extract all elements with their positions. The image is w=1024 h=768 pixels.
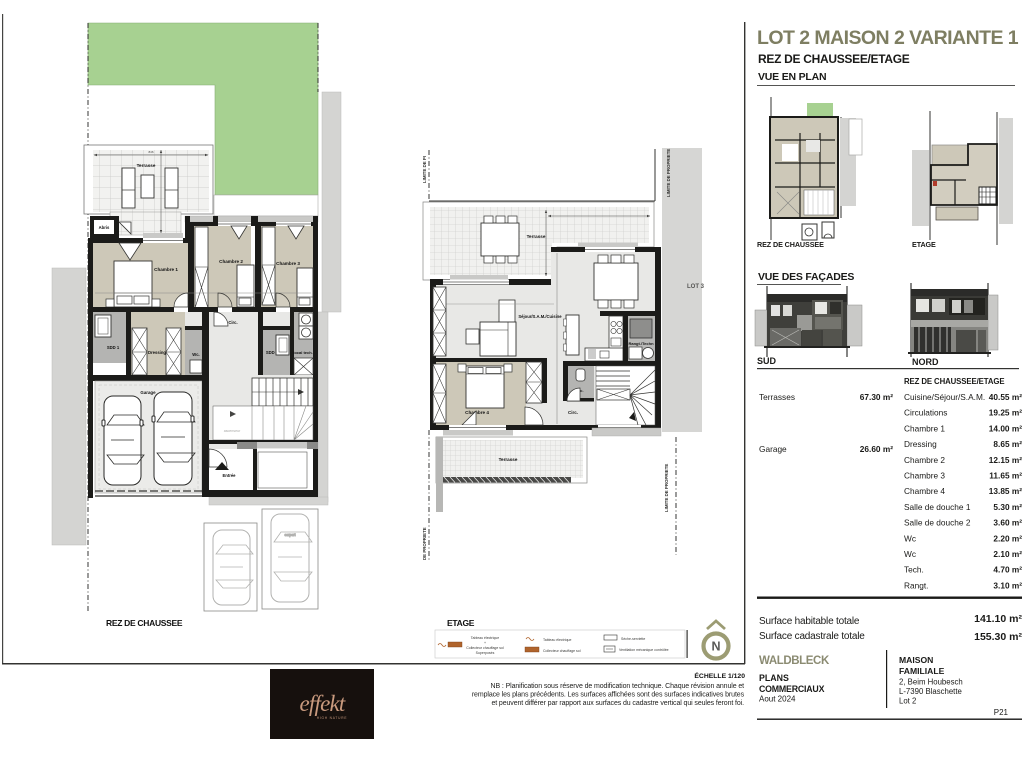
- svg-text:Chambre 3: Chambre 3: [904, 471, 945, 481]
- svg-text:Chambre 2: Chambre 2: [219, 259, 243, 264]
- svg-text:effekt: effekt: [300, 691, 346, 716]
- svg-text:et peuvent différer par rappor: et peuvent différer par rapport aux surf…: [491, 700, 744, 707]
- svg-text:Chambre 4: Chambre 4: [465, 410, 489, 415]
- svg-text:HIGH NATURE: HIGH NATURE: [317, 716, 348, 720]
- svg-text:Chambre 3: Chambre 3: [276, 261, 300, 266]
- svg-text:2.10 m²: 2.10 m²: [993, 549, 1022, 559]
- svg-text:Rangt./Techn: Rangt./Techn: [628, 341, 654, 346]
- svg-text:19.25 m²: 19.25 m²: [989, 408, 1022, 418]
- svg-text:846: 846: [148, 150, 153, 154]
- svg-text:Garage: Garage: [759, 444, 787, 454]
- svg-text:local tech.: local tech.: [293, 350, 313, 355]
- svg-text:ETAGE: ETAGE: [912, 240, 936, 249]
- svg-text:SDD 1: SDD 1: [107, 345, 120, 350]
- svg-text:Lot 2: Lot 2: [899, 697, 916, 706]
- svg-text:ÉCHELLE 1/120: ÉCHELLE 1/120: [694, 671, 745, 680]
- svg-text:Aout 2024: Aout 2024: [759, 695, 796, 704]
- svg-text:REZ DE CHAUSSEE/ETAGE: REZ DE CHAUSSEE/ETAGE: [904, 377, 1004, 386]
- svg-text:Terrasses: Terrasses: [759, 392, 795, 402]
- svg-text:Surface cadastrale totale: Surface cadastrale totale: [759, 631, 865, 642]
- svg-text:2, Beim Houbesch: 2, Beim Houbesch: [899, 678, 963, 687]
- svg-text:4.70 m²: 4.70 m²: [993, 565, 1022, 575]
- svg-text:Terrasse: Terrasse: [527, 234, 546, 239]
- svg-text:Terrasse: Terrasse: [137, 163, 156, 168]
- svg-text:carport: carport: [285, 533, 296, 537]
- svg-text:Chambre 1: Chambre 1: [904, 423, 945, 433]
- svg-text:N: N: [711, 640, 720, 654]
- svg-text:Chambre 2: Chambre 2: [904, 455, 945, 465]
- svg-text:REZ DE CHAUSSEE: REZ DE CHAUSSEE: [757, 240, 824, 249]
- svg-text:Wc: Wc: [904, 549, 916, 559]
- svg-text:NB : Planification sous réserv: NB : Planification sous réserve de modif…: [491, 683, 745, 690]
- svg-text:LOT 3: LOT 3: [687, 284, 705, 290]
- svg-text:L-7390 Blaschette: L-7390 Blaschette: [899, 687, 962, 696]
- svg-text:Tableau électrique: Tableau électrique: [471, 636, 499, 640]
- svg-text:Sèche-serviette: Sèche-serviette: [621, 637, 645, 641]
- svg-text:MAISON: MAISON: [899, 655, 933, 665]
- svg-text:40.55 m²: 40.55 m²: [989, 392, 1022, 402]
- svg-text:ascenseur: ascenseur: [224, 429, 241, 433]
- svg-text:Abris: Abris: [99, 225, 110, 230]
- svg-text:Circ.: Circ.: [228, 320, 237, 325]
- svg-text:Wc.: Wc.: [192, 352, 199, 357]
- svg-text:2.20 m²: 2.20 m²: [993, 533, 1022, 543]
- svg-text:Superposés: Superposés: [476, 651, 495, 655]
- svg-text:REZ DE CHAUSSEE: REZ DE CHAUSSEE: [106, 618, 183, 628]
- svg-text:NORD: NORD: [912, 357, 939, 367]
- svg-text:Collecteur chauffage sol: Collecteur chauffage sol: [466, 646, 504, 650]
- svg-text:FAMILIALE: FAMILIALE: [899, 666, 945, 676]
- svg-text:P21: P21: [994, 708, 1009, 717]
- svg-text:LOT 2 MAISON 2 VARIANTE 1: LOT 2 MAISON 2 VARIANTE 1: [757, 27, 1019, 49]
- svg-text:Terrasse: Terrasse: [499, 457, 518, 462]
- svg-text:SUD: SUD: [757, 356, 777, 366]
- svg-text:Circulations: Circulations: [904, 408, 947, 418]
- svg-text:Chambre 1: Chambre 1: [154, 267, 178, 272]
- svg-text:8.65 m²: 8.65 m²: [993, 439, 1022, 449]
- svg-text:WALDBLECK: WALDBLECK: [759, 655, 830, 667]
- svg-text:26.60 m²: 26.60 m²: [860, 444, 893, 454]
- svg-text:13.85 m²: 13.85 m²: [989, 486, 1022, 496]
- svg-text:Wc: Wc: [904, 533, 916, 543]
- svg-text:VUE DES FAÇADES: VUE DES FAÇADES: [758, 271, 854, 283]
- svg-text:141.10 m²: 141.10 m²: [974, 613, 1022, 625]
- svg-text:11.65 m²: 11.65 m²: [989, 471, 1022, 481]
- svg-text:VUE EN PLAN: VUE EN PLAN: [758, 71, 826, 83]
- svg-text:Tableau électrique: Tableau électrique: [543, 638, 571, 642]
- svg-text:COMMERCIAUX: COMMERCIAUX: [759, 684, 825, 694]
- svg-text:Rangt.: Rangt.: [904, 580, 928, 590]
- svg-text:Ventilation mécanique contrôlé: Ventilation mécanique contrôlée: [619, 648, 669, 652]
- svg-text:67.30 m²: 67.30 m²: [860, 392, 893, 402]
- svg-text:LIMITE DE PROPRIETE: LIMITE DE PROPRIETE: [666, 149, 671, 197]
- svg-text:Entrée: Entrée: [222, 473, 236, 478]
- svg-text:REZ DE CHAUSSEE/ETAGE: REZ DE CHAUSSEE/ETAGE: [758, 52, 910, 66]
- svg-text:LIMITE DE PI: LIMITE DE PI: [422, 156, 427, 183]
- svg-text:Chambre 4: Chambre 4: [904, 486, 945, 496]
- svg-text:Garage: Garage: [140, 390, 156, 395]
- svg-text:Séjour/S.A.M./Cuisine: Séjour/S.A.M./Cuisine: [518, 314, 562, 319]
- svg-text:Cuisine/Séjour/S.A.M.: Cuisine/Séjour/S.A.M.: [904, 392, 985, 402]
- svg-text:LIMITE DE PROPRIETE: LIMITE DE PROPRIETE: [664, 464, 669, 512]
- svg-text:PLANS: PLANS: [759, 673, 789, 683]
- svg-text:Dressing: Dressing: [904, 439, 937, 449]
- svg-text:3.10 m²: 3.10 m²: [993, 580, 1022, 590]
- svg-text:Dressing: Dressing: [148, 350, 166, 355]
- svg-text:Surface habitable totale: Surface habitable totale: [759, 616, 860, 627]
- svg-text:155.30 m²: 155.30 m²: [974, 631, 1022, 643]
- svg-text:remplace les plans précédents.: remplace les plans précédents. Les surfa…: [472, 692, 745, 699]
- svg-text:Salle de douche 2: Salle de douche 2: [904, 518, 971, 528]
- svg-text:Salle de douche 1: Salle de douche 1: [904, 502, 971, 512]
- svg-text:ETAGE: ETAGE: [447, 618, 475, 628]
- svg-text:Tech.: Tech.: [904, 565, 924, 575]
- svg-text:DE PROPRIETE: DE PROPRIETE: [422, 527, 427, 560]
- svg-text:5.30 m²: 5.30 m²: [993, 502, 1022, 512]
- svg-text:Collecteur chauffage sol: Collecteur chauffage sol: [543, 649, 581, 653]
- svg-text:14.00 m²: 14.00 m²: [989, 423, 1022, 433]
- svg-text:+: +: [484, 641, 486, 645]
- svg-text:3.60 m²: 3.60 m²: [993, 518, 1022, 528]
- svg-text:12.15 m²: 12.15 m²: [989, 455, 1022, 465]
- svg-text:Circ.: Circ.: [568, 410, 578, 415]
